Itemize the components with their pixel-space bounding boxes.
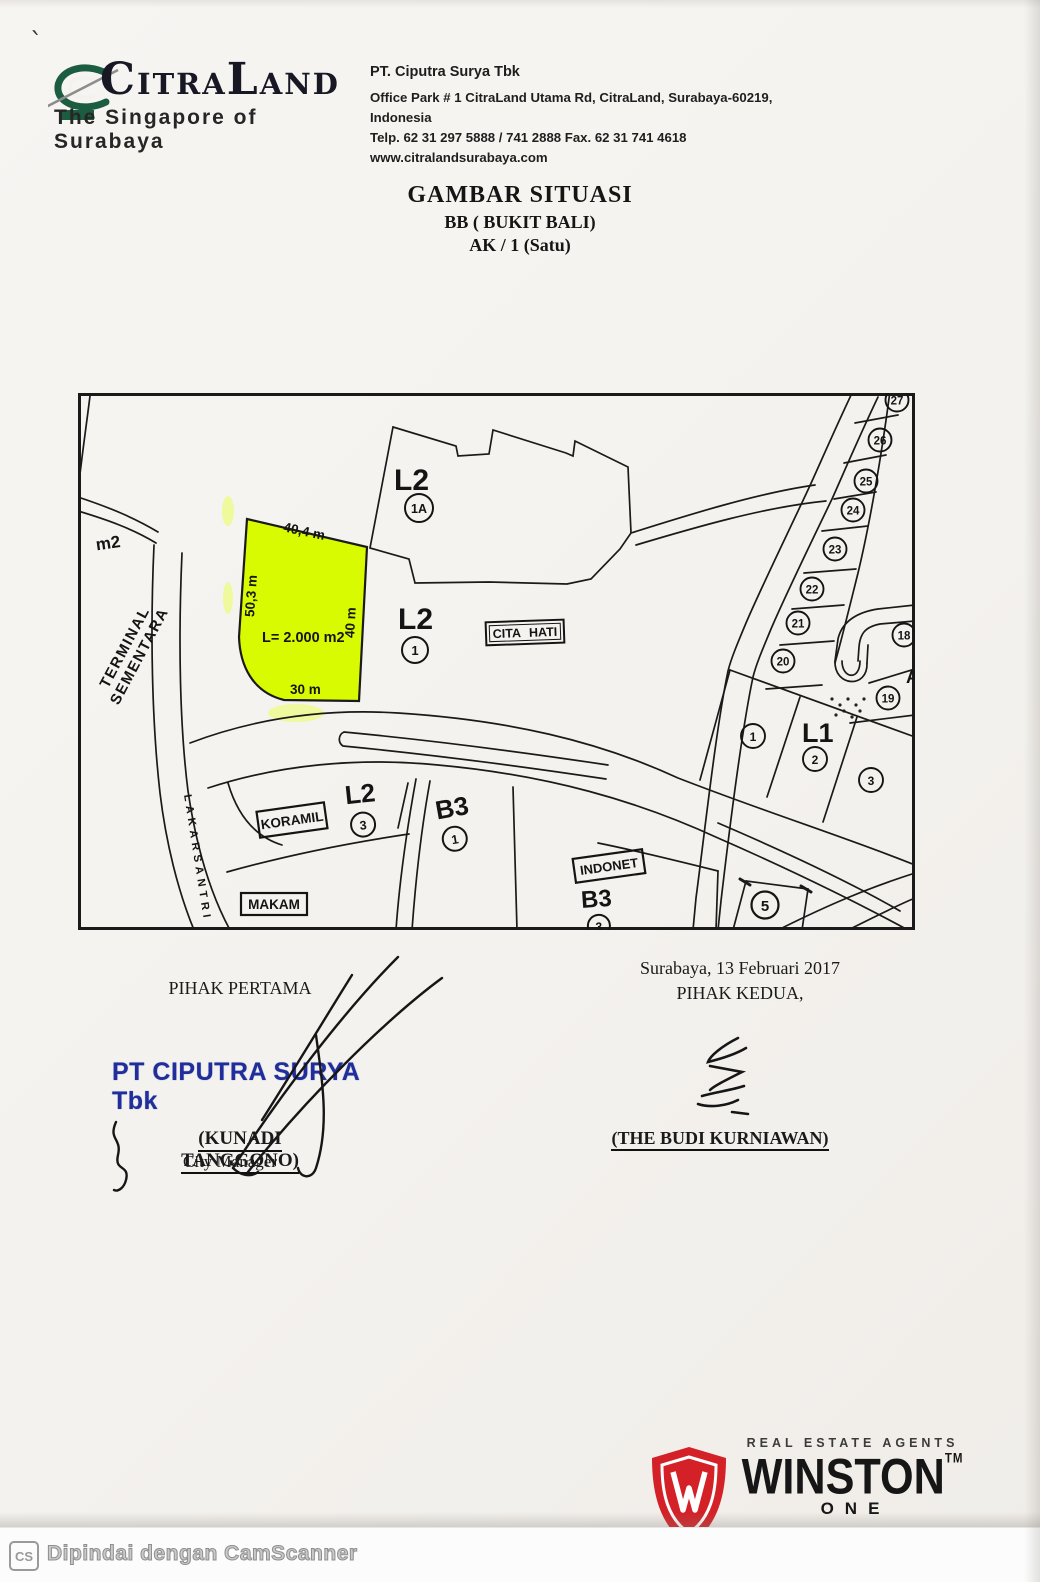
title-line2: BB ( BUKIT BALI) bbox=[0, 212, 1040, 233]
site-map: m2 TERMINAL SEMENTARA LAKARSANTRI 40,4 m… bbox=[78, 393, 915, 930]
block-l2-3: L2 3 bbox=[343, 777, 379, 838]
signer-role-left: City Manager bbox=[140, 1152, 320, 1172]
plot-number: 20 bbox=[777, 657, 790, 669]
camscanner-icon: CS bbox=[9, 1541, 39, 1571]
indonet-box: INDONET bbox=[573, 849, 646, 883]
dim-bottom: 30 m bbox=[290, 682, 321, 697]
plot-divider bbox=[855, 415, 898, 423]
plot-number: 25 bbox=[860, 477, 873, 489]
plot-number: 26 bbox=[874, 436, 887, 448]
block-b3-1-code: B3 bbox=[433, 790, 471, 825]
plot-number: 27 bbox=[891, 396, 904, 408]
road-line bbox=[718, 823, 900, 911]
plot-number: 23 bbox=[829, 545, 842, 557]
highlighter-smudge bbox=[222, 496, 234, 526]
pihak-kedua-heading: PIHAK KEDUA, bbox=[600, 983, 880, 1004]
title-line1: GAMBAR SITUASI bbox=[0, 182, 1040, 209]
plot-divider bbox=[700, 670, 730, 780]
edge-letter: A bbox=[906, 667, 915, 687]
plot-divider bbox=[804, 569, 856, 573]
company-info: PT. Ciputra Surya Tbk Office Park # 1 Ci… bbox=[370, 62, 810, 168]
road-line bbox=[693, 393, 853, 930]
road-line bbox=[718, 397, 878, 930]
plot-divider bbox=[767, 697, 800, 797]
camscanner-watermark-bar: CS Dipindai dengan CamScanner bbox=[0, 1527, 1040, 1582]
numbered-plots: 27 26 25 24 23 22 21 20 18 19 bbox=[772, 393, 916, 710]
block-l2-3-code: L2 bbox=[343, 777, 376, 810]
trademark-symbol: TM bbox=[945, 1450, 964, 1466]
title-line3: AK / 1 (Satu) bbox=[0, 235, 1040, 256]
highlighter-smudge bbox=[223, 582, 233, 614]
plot-number: 24 bbox=[847, 506, 860, 518]
culdesac-outer bbox=[835, 661, 867, 682]
pen-tick-mark: ` bbox=[30, 28, 43, 58]
campus-outline bbox=[370, 427, 631, 584]
m2-label: m2 bbox=[95, 532, 122, 554]
camscanner-text: Dipindai dengan CamScanner bbox=[47, 1542, 358, 1566]
makam-label: MAKAM bbox=[248, 897, 300, 912]
budi-kurniawan-name: (THE BUDI KURNIAWAN) bbox=[611, 1128, 828, 1151]
road-line bbox=[848, 898, 915, 930]
block-l2-3-num: 3 bbox=[359, 818, 367, 833]
brand-l: L bbox=[227, 58, 260, 102]
company-name: PT. Ciputra Surya Tbk bbox=[370, 62, 810, 82]
l1-plot-number: 3 bbox=[868, 774, 875, 788]
makam-box: MAKAM bbox=[241, 893, 307, 915]
culdesac-inner bbox=[842, 661, 860, 675]
scan-shadow bbox=[0, 1512, 1040, 1528]
block-l2-1a-code: L2 bbox=[394, 464, 429, 497]
plot-number: 19 bbox=[882, 694, 895, 706]
map-labels: m2 TERMINAL SEMENTARA LAKARSANTRI 40,4 m… bbox=[92, 393, 915, 930]
road-line bbox=[631, 485, 815, 533]
brand-name: CITRALAND bbox=[100, 58, 342, 102]
plot-divider bbox=[802, 889, 808, 930]
plot-number: 18 bbox=[898, 631, 911, 643]
block-b3-3: B3 3 bbox=[580, 885, 614, 930]
l1-plot-number: 2 bbox=[812, 753, 819, 767]
brand-itra: ITRA bbox=[137, 70, 227, 99]
plot-divider bbox=[513, 787, 517, 930]
plot-divider bbox=[716, 871, 718, 930]
road-line bbox=[867, 645, 868, 663]
plot-divider bbox=[822, 526, 868, 531]
plot-divider bbox=[792, 605, 844, 609]
block-l1-code: L1 bbox=[802, 718, 834, 748]
block-l2-1a-num: 1A bbox=[411, 502, 427, 516]
plot-area-label: L= 2.000 m2 bbox=[262, 630, 345, 646]
brand-c: C bbox=[100, 58, 137, 102]
cita-hati-label: CITA HATI bbox=[493, 625, 558, 641]
block-b3-1-num: 1 bbox=[450, 832, 459, 847]
citraland-logo: CITRALAND The Singapore of Surabaya bbox=[42, 58, 342, 154]
plot-number: 22 bbox=[806, 585, 819, 597]
plot-divider bbox=[398, 783, 408, 828]
road-line bbox=[208, 762, 908, 930]
brand-tagline: The Singapore of Surabaya bbox=[54, 106, 342, 154]
block-l2-1-code: L2 bbox=[398, 603, 433, 636]
place-and-date: Surabaya, 13 Februari 2017 bbox=[600, 958, 880, 979]
winston-name-text: WINSTON bbox=[742, 1448, 945, 1505]
document-title: GAMBAR SITUASI BB ( BUKIT BALI) AK / 1 (… bbox=[0, 182, 1040, 256]
company-phones: Telp. 62 31 297 5888 / 741 2888 Fax. 62 … bbox=[370, 128, 810, 148]
road-name-label: LAKARSANTRI bbox=[181, 794, 213, 923]
block-b3-3-code: B3 bbox=[580, 885, 612, 914]
plot-divider bbox=[780, 641, 834, 645]
block-boundary bbox=[227, 834, 409, 872]
company-address: Office Park # 1 CitraLand Utama Rd, Citr… bbox=[370, 88, 810, 128]
koramil-box: KORAMIL bbox=[257, 802, 328, 837]
brand-and: AND bbox=[260, 70, 340, 99]
block-b3-3-num: 3 bbox=[595, 920, 603, 930]
scanned-document-page: ` CITRALAND The Singapore of Surabaya PT… bbox=[0, 0, 1040, 1582]
road-line bbox=[152, 545, 194, 930]
winston-name: WINSTONTM bbox=[740, 1450, 966, 1503]
signature-right bbox=[680, 1020, 790, 1130]
signer-name-right: (THE BUDI KURNIAWAN) bbox=[590, 1128, 850, 1149]
dim-left: 50,3 m bbox=[242, 574, 260, 617]
plot-divider bbox=[746, 881, 808, 889]
plot-divider bbox=[733, 881, 746, 930]
company-website: www.citralandsurabaya.com bbox=[370, 148, 810, 168]
scan-edge-shadow bbox=[0, 0, 1040, 8]
l1-plot-number: 1 bbox=[750, 730, 757, 744]
plot5-number: 5 bbox=[761, 898, 769, 915]
scan-edge-shadow bbox=[1024, 0, 1040, 1582]
block-b3-1: B3 1 bbox=[433, 790, 476, 853]
cita-hati-box: CITA HATI bbox=[486, 620, 565, 646]
terminal-label: TERMINAL SEMENTARA bbox=[92, 597, 172, 708]
block-l2-1-num: 1 bbox=[411, 643, 418, 658]
winston-wordmark: REAL ESTATE AGENTS WINSTONTM ONE bbox=[735, 1436, 970, 1519]
plot-number: 21 bbox=[792, 619, 805, 631]
road-line bbox=[412, 781, 430, 930]
koramil-label: KORAMIL bbox=[260, 809, 324, 833]
